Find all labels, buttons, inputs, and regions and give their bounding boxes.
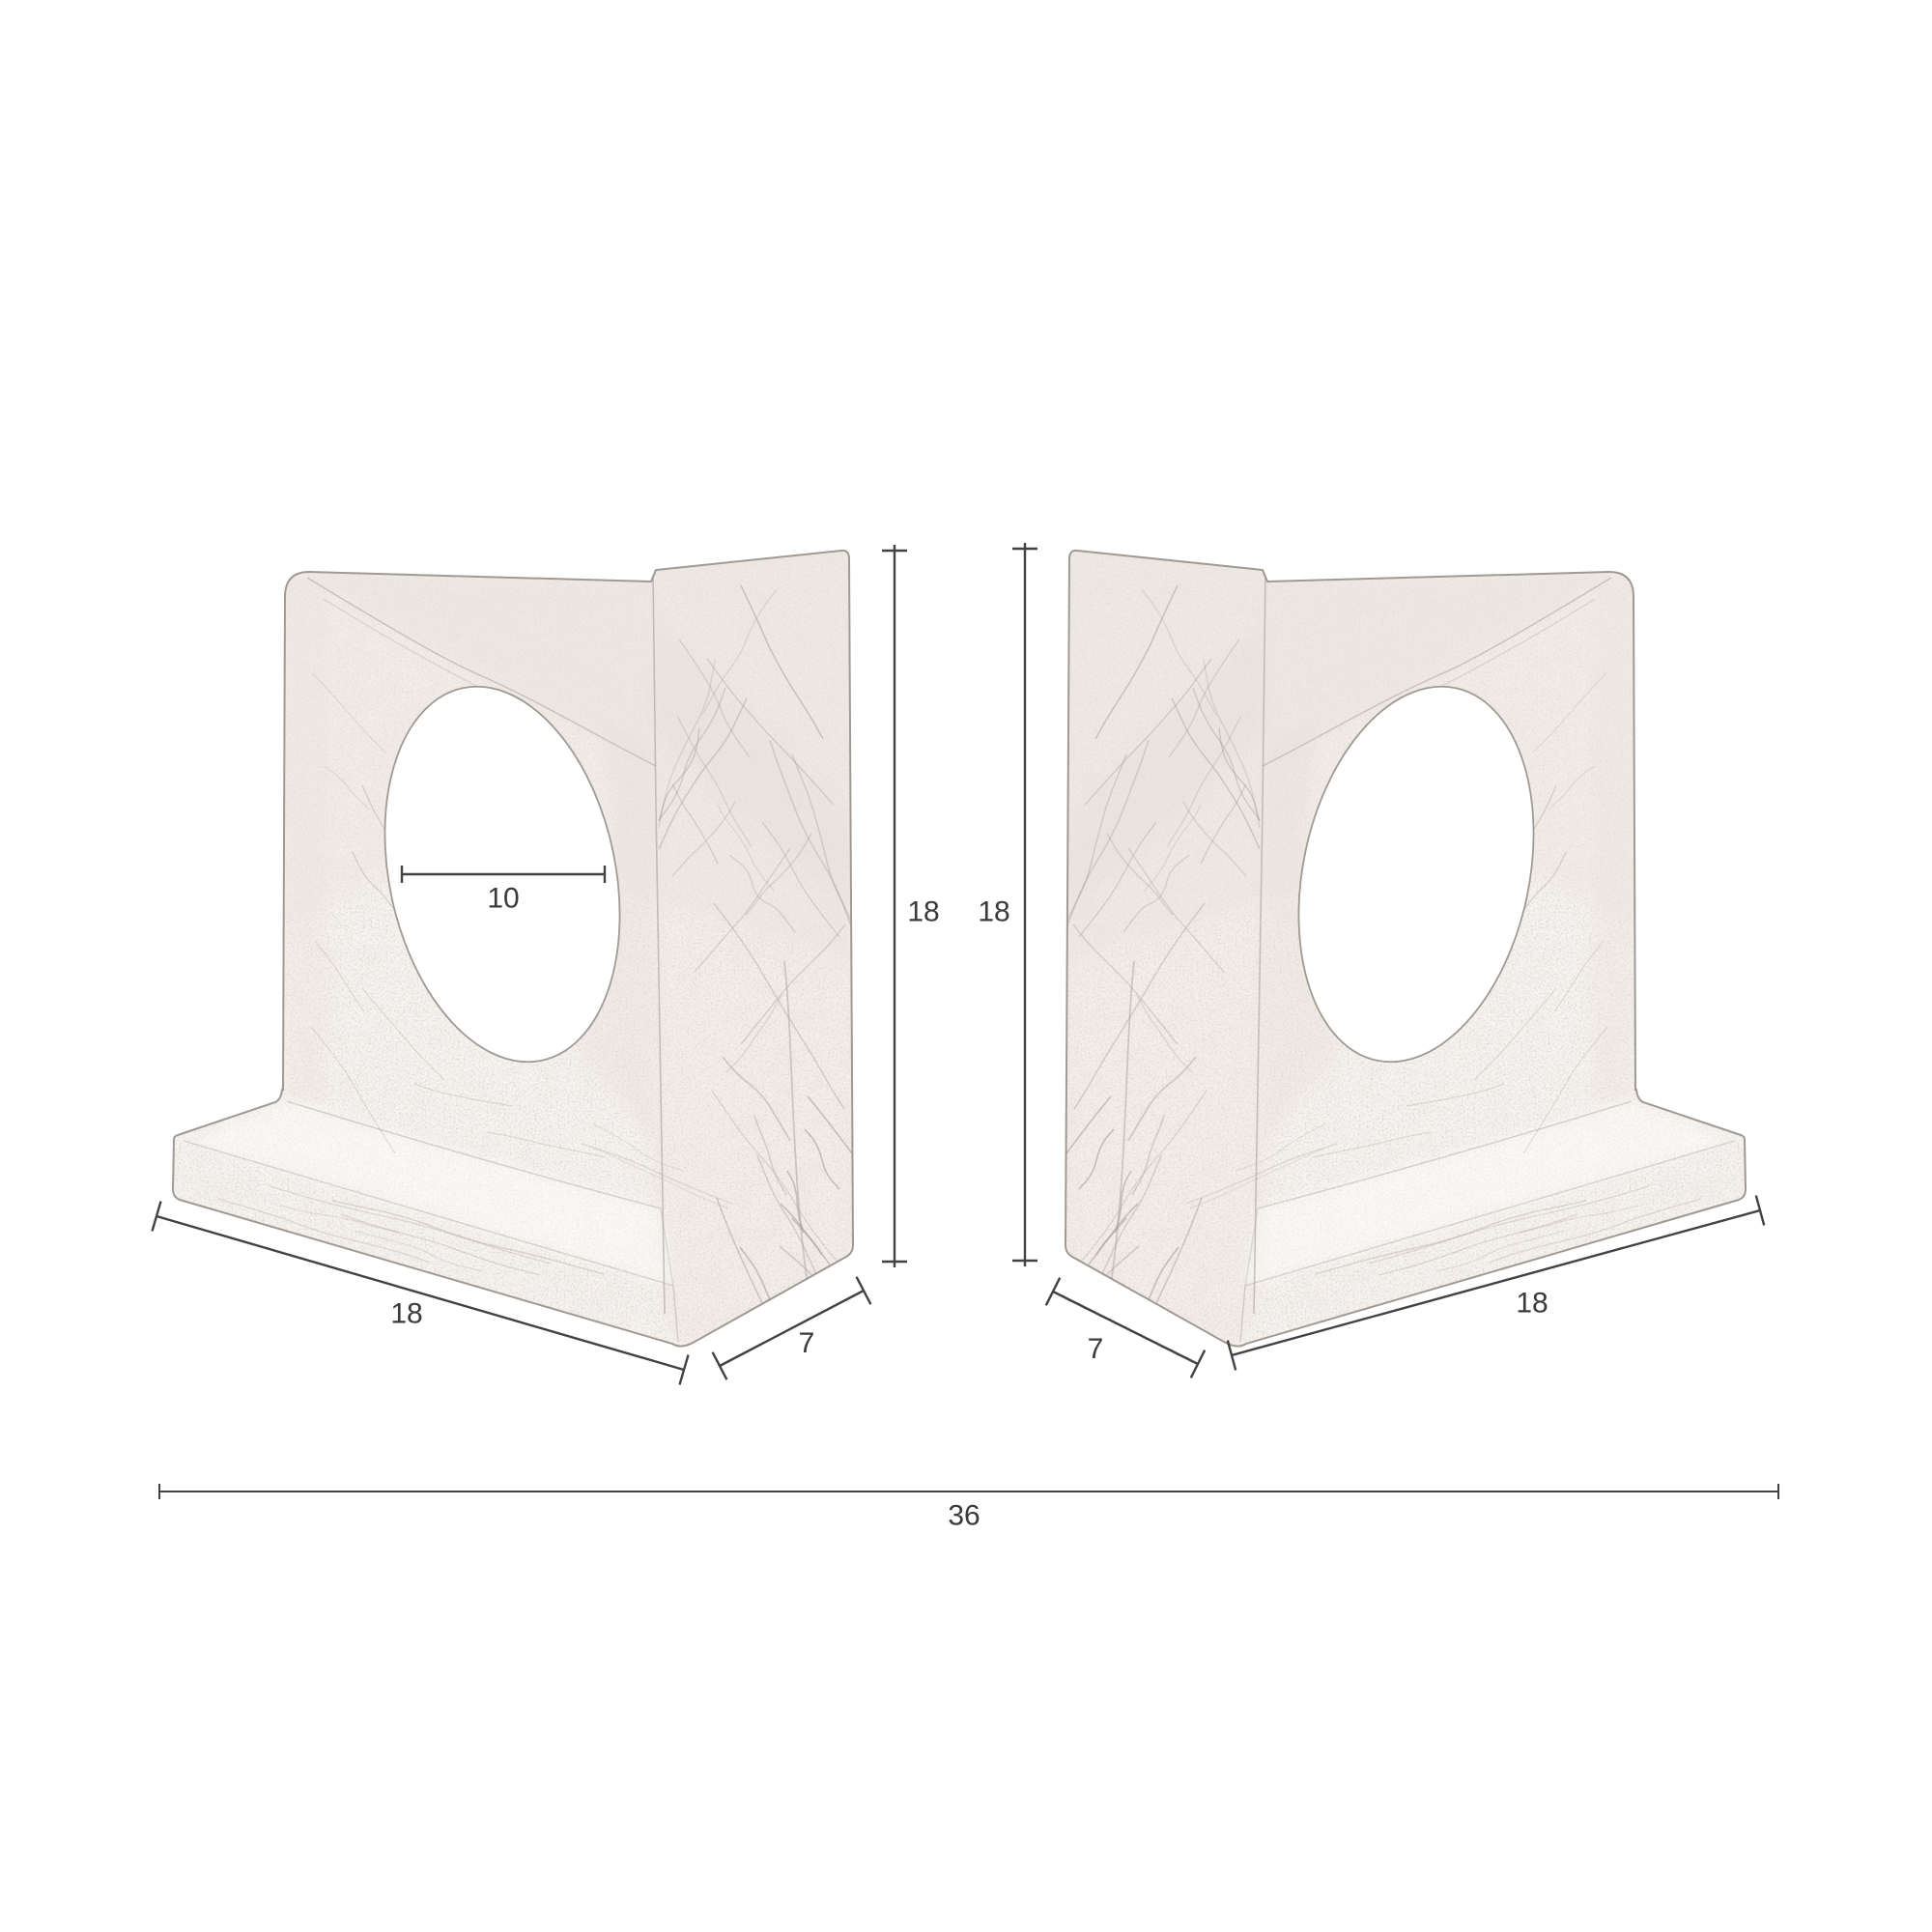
svg-text:18: 18 <box>390 1298 422 1330</box>
svg-text:18: 18 <box>907 896 939 928</box>
svg-text:10: 10 <box>487 883 519 915</box>
svg-text:18: 18 <box>1516 1288 1548 1320</box>
svg-text:18: 18 <box>978 896 1009 928</box>
svg-text:36: 36 <box>948 1500 980 1532</box>
svg-text:7: 7 <box>799 1327 815 1359</box>
svg-text:7: 7 <box>1088 1333 1104 1365</box>
